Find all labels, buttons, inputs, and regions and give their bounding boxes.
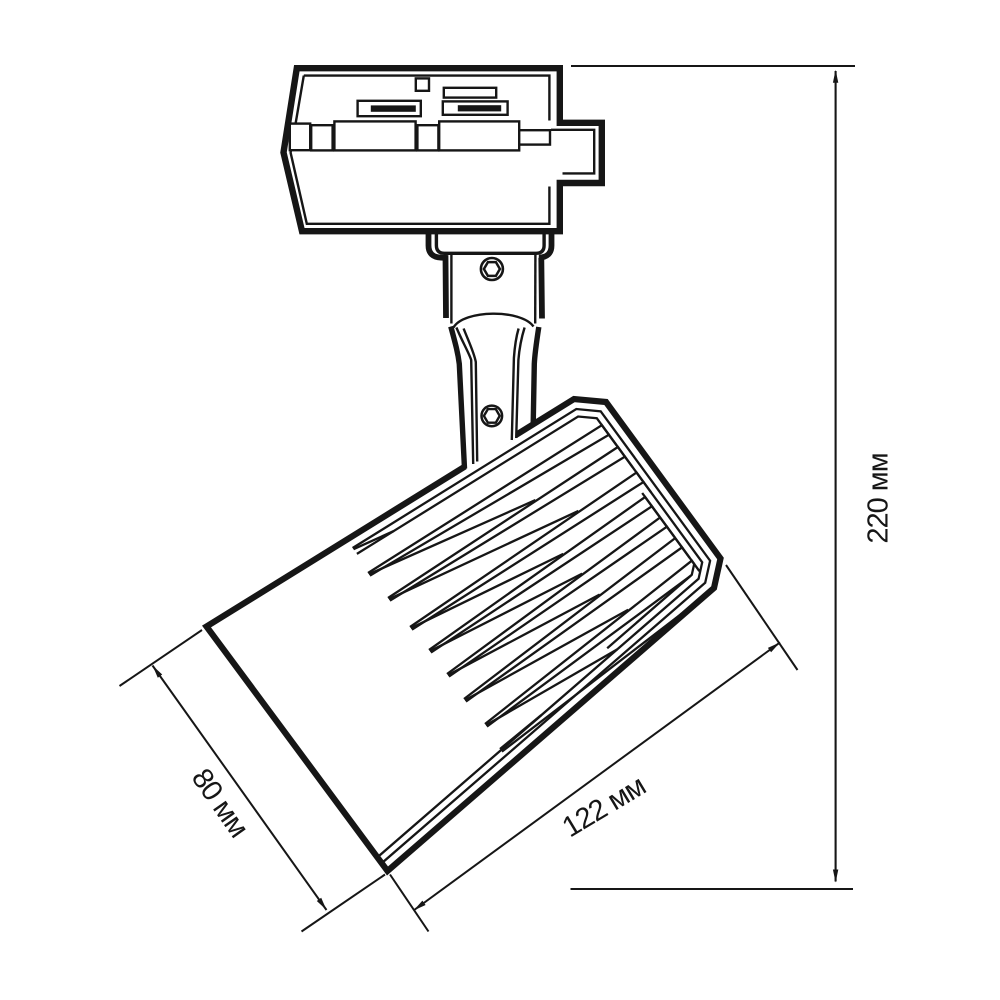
svg-text:220 мм: 220 мм: [863, 453, 895, 543]
